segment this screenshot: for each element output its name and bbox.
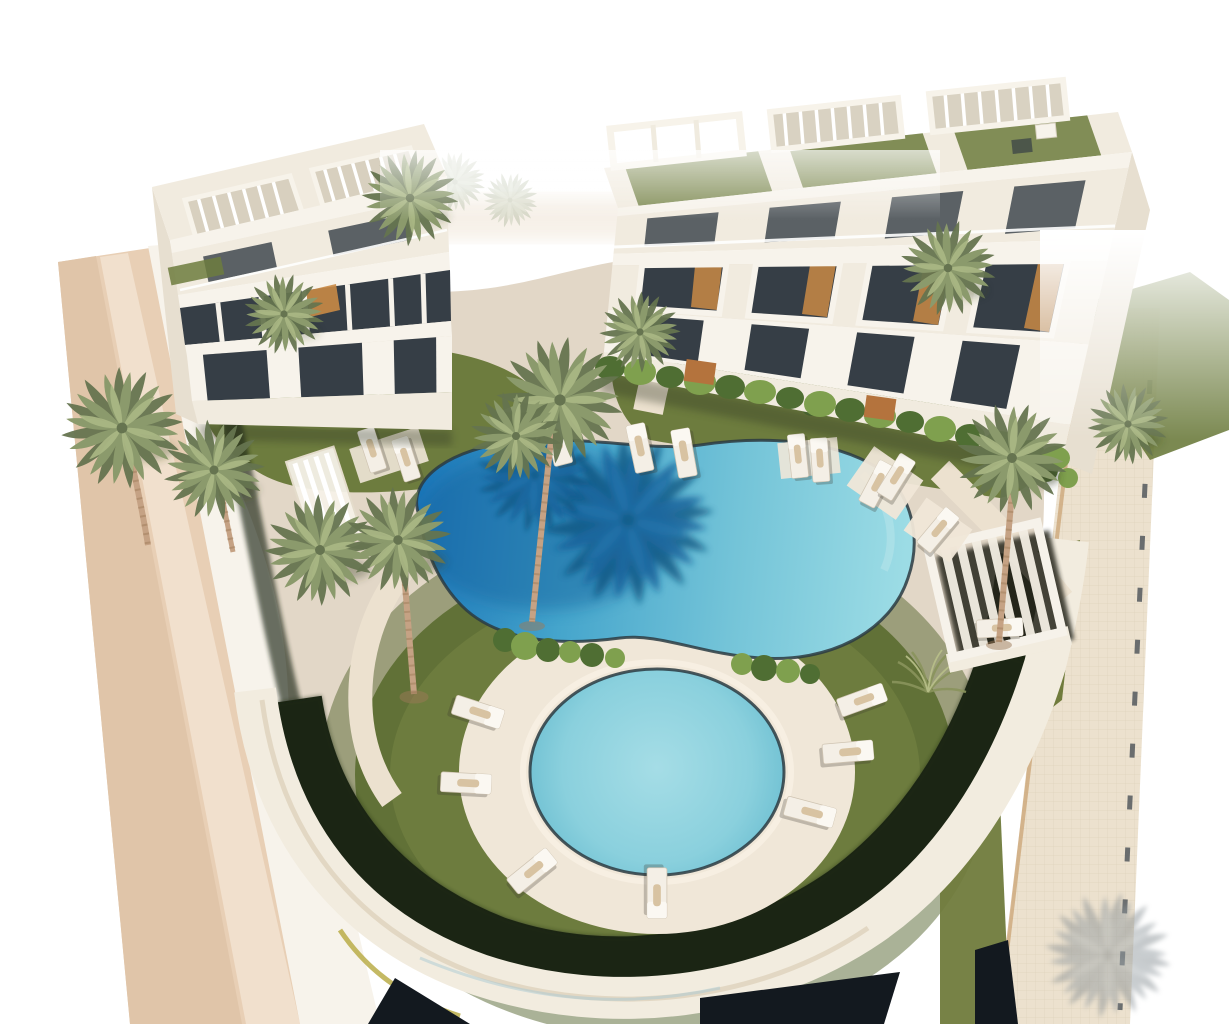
terrace-glazing <box>1005 180 1086 234</box>
window <box>203 350 270 401</box>
balcony-box <box>748 263 840 321</box>
wooden-gate <box>864 395 897 421</box>
sun-lounger <box>819 740 875 768</box>
window <box>847 332 914 393</box>
round-pool <box>523 662 791 882</box>
window <box>745 324 810 378</box>
trunk-base-ring <box>986 640 1012 650</box>
architectural-render <box>0 0 1229 1024</box>
sun-lounger <box>437 772 492 798</box>
trunk-base-ring <box>519 621 545 631</box>
window <box>298 343 363 397</box>
roof-unit <box>1011 138 1032 154</box>
wooden-gate <box>684 359 717 385</box>
sun-lounger <box>644 864 667 918</box>
render-canvas <box>0 0 1229 1024</box>
trunk-base-ring <box>400 691 428 703</box>
window <box>394 337 437 394</box>
fade-top <box>380 150 940 220</box>
roof-unit <box>1035 123 1056 139</box>
fade-top-right <box>1040 230 1229 440</box>
sun-lounger <box>810 437 833 485</box>
